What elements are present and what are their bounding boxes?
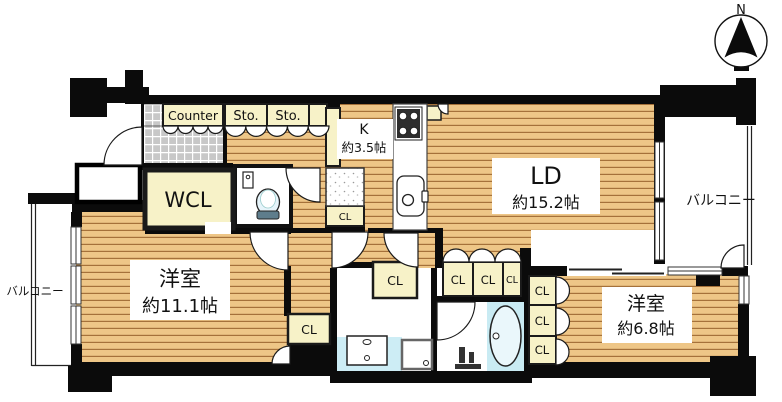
toilet-seat-icon	[257, 211, 279, 219]
ld-size: 約15.2帖	[512, 193, 580, 212]
compass-north-label: N	[736, 3, 746, 18]
bedroom-main-size: 約11.1帖	[142, 296, 218, 317]
toilet-control-panel	[243, 172, 253, 188]
bedroom-main-name: 洋室	[159, 267, 201, 291]
closet-row-folding-door	[443, 249, 521, 262]
floor-corridor	[285, 230, 330, 316]
wcl-label: WCL	[164, 188, 211, 212]
storage-folding-door	[225, 126, 329, 136]
kitchen-fixtures	[393, 104, 428, 230]
closet-stack-3-label: CL	[535, 343, 550, 357]
closet-row-2-label: CL	[481, 273, 496, 287]
storage-1-label: Sto.	[233, 109, 258, 124]
utility-meter-box	[77, 165, 140, 202]
closet-stack-1-label: CL	[535, 284, 550, 298]
closet-row-1-label: CL	[451, 273, 466, 287]
closet-row-3-label: CL	[506, 275, 519, 286]
counter-label: Counter	[168, 108, 219, 123]
balcony-left-label: バルコニー	[6, 284, 63, 298]
closet-kitchen-label: CL	[339, 212, 352, 223]
bedroom-second-name: 洋室	[627, 293, 665, 315]
closet-stack-2-label: CL	[535, 314, 550, 328]
kitchen-sink-icon	[397, 176, 428, 216]
entrance-door	[104, 127, 142, 165]
ld-name: LD	[530, 162, 562, 190]
compass: N	[715, 3, 767, 67]
balcony-right-label: バルコニー	[686, 193, 756, 209]
closet-stack-folding-door	[556, 277, 570, 365]
storage-2-label: Sto.	[275, 109, 300, 124]
floor-plan: Counter Sto. Sto. WCL K 約3.5帖 LD 約15.2帖 …	[0, 0, 782, 402]
wcl-door-opening	[205, 222, 231, 234]
kitchen-size: 約3.5帖	[342, 140, 387, 155]
bedroom-second-size: 約6.8帖	[617, 319, 674, 338]
floor-plan-drawing: Counter Sto. Sto. WCL K 約3.5帖 LD 約15.2帖 …	[0, 0, 782, 402]
kitchen-name: K	[359, 122, 369, 138]
closet-washroom-label: CL	[387, 273, 403, 288]
storage-small	[309, 104, 327, 126]
balcony-right-area	[664, 118, 752, 266]
stove-icon	[395, 107, 422, 140]
sliding-door-ld-bedroom	[567, 266, 666, 276]
closet-corridor-label: CL	[301, 322, 317, 337]
refrigerator-space	[326, 168, 364, 206]
